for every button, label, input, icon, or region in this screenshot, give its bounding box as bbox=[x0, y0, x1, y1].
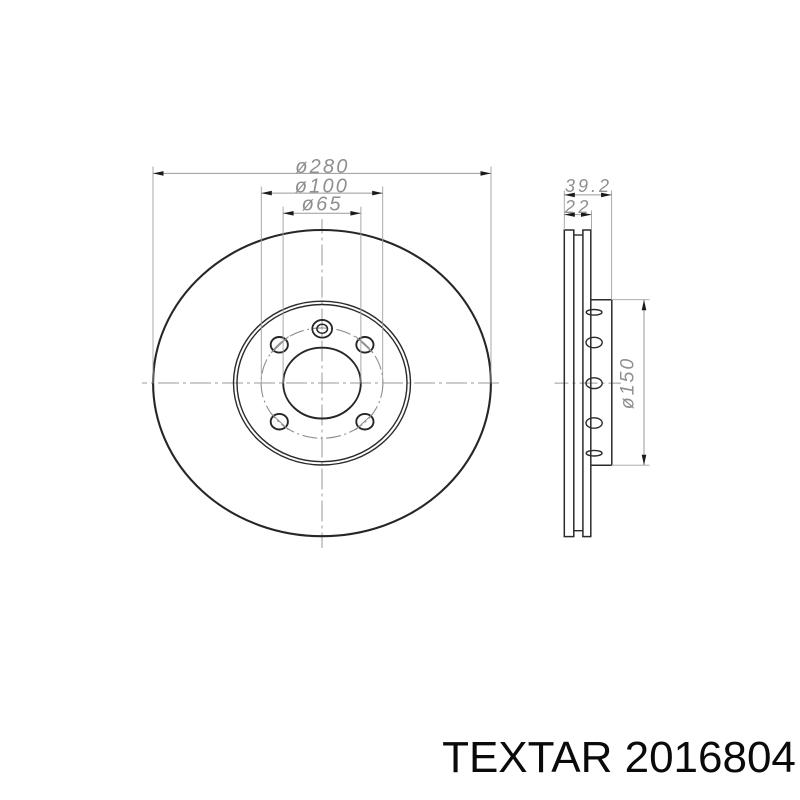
svg-text:ø150: ø150 bbox=[617, 357, 639, 409]
svg-text:39.2: 39.2 bbox=[565, 176, 612, 196]
svg-text:22: 22 bbox=[564, 197, 592, 217]
svg-text:ø65: ø65 bbox=[302, 193, 343, 215]
svg-text:TEXTAR 2016804: TEXTAR 2016804 bbox=[442, 733, 796, 782]
